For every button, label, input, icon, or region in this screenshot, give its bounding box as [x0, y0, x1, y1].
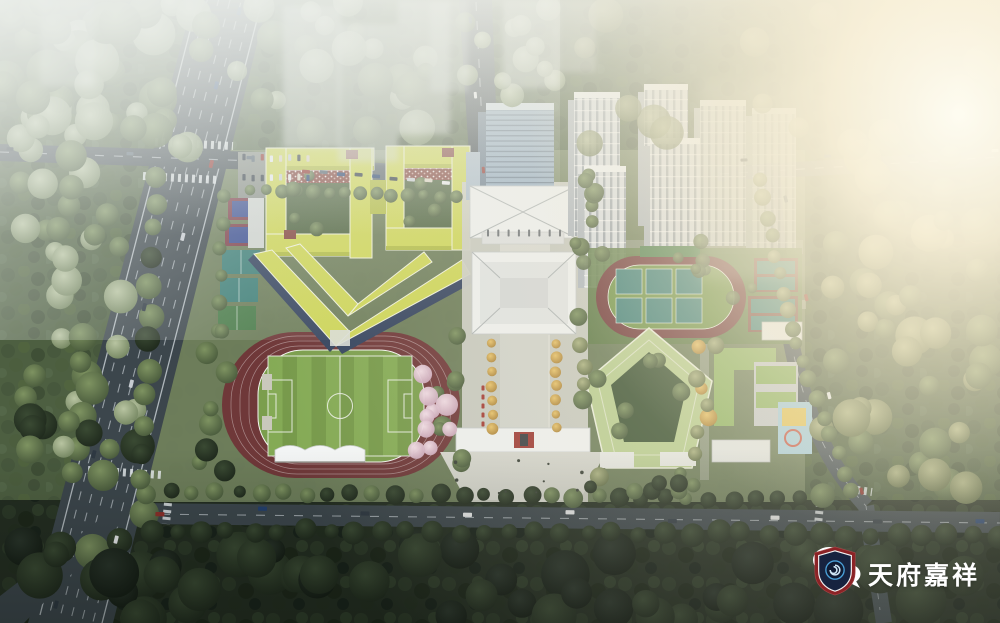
atmosphere [0, 0, 1000, 623]
scene-canvas [0, 0, 1000, 623]
shield-logo [812, 546, 858, 596]
watermark-brand: 天府嘉祥 [868, 556, 980, 592]
vignette [0, 0, 1000, 623]
aerial-rendering: 天府嘉祥 [0, 0, 1000, 623]
watermark: 天府嘉祥 [812, 546, 1000, 623]
